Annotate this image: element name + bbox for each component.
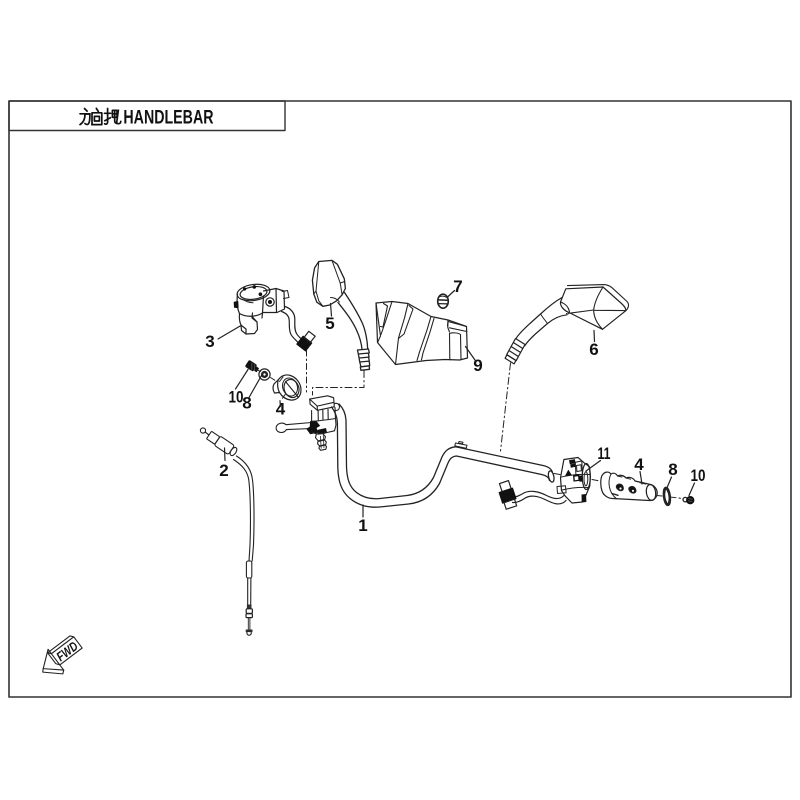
svg-text:1: 1 [358,516,367,535]
svg-text:8: 8 [668,460,677,479]
svg-text:4: 4 [634,455,644,474]
svg-text:7: 7 [453,277,462,296]
svg-text:4: 4 [276,400,286,419]
svg-text:10: 10 [691,466,706,485]
svg-text:10: 10 [229,388,244,407]
svg-text:3: 3 [205,332,214,351]
svg-text:2: 2 [219,461,228,480]
svg-text:11: 11 [598,444,611,463]
svg-text:5: 5 [325,314,334,333]
svg-text:/ HANDLEBAR: / HANDLEBAR [116,108,214,129]
svg-text:6: 6 [589,340,598,359]
